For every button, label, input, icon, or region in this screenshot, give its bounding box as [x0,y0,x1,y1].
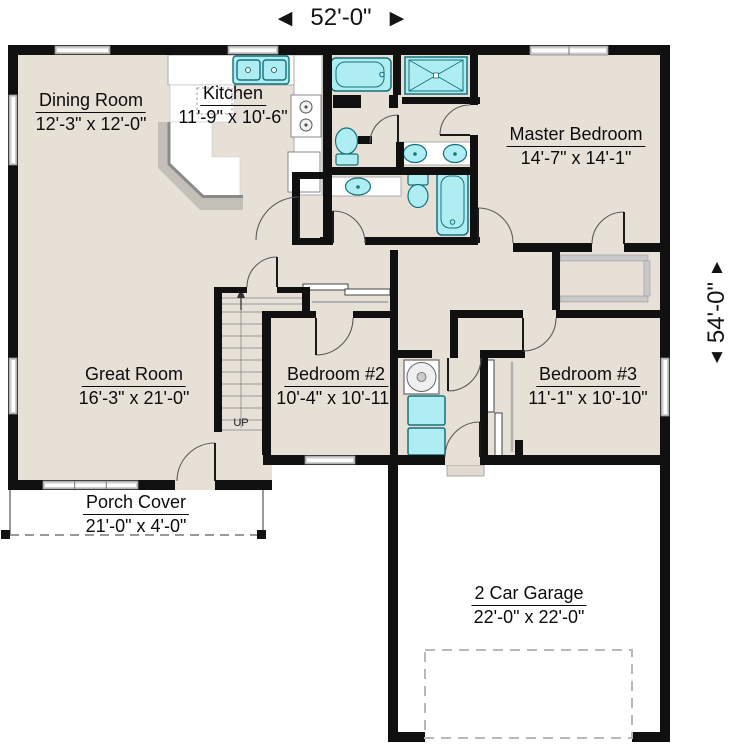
window [43,481,138,489]
room-dims: 21'-0" x 4'-0" [83,515,189,537]
room-dims: 11'-9" x 10'-6" [178,106,287,128]
room-label-bedroom-2: Bedroom #2 10'-4" x 10'-11" [276,364,395,409]
room-dims: 10'-4" x 10'-11" [276,387,395,409]
closet-slider-door [345,289,390,295]
room-dims: 11'-1" x 10'-10" [528,387,647,409]
arrow-right-icon: ▶ [390,9,405,28]
washer [408,396,445,425]
closet-slider-door [487,360,494,412]
window [530,46,608,55]
room-name: Bedroom #3 [536,364,640,387]
room-label-kitchen: Kitchen 11'-9" x 10'-6" [178,83,287,128]
kitchen-sink [233,56,289,84]
room-name: Porch Cover [83,492,189,515]
room-label-garage: 2 Car Garage 22'-0" x 22'-0" [471,583,586,628]
room-name: Great Room [82,364,186,387]
dryer [408,428,445,455]
hall-toilet [336,128,359,165]
height-dimension-text: 54'-0" [703,282,731,343]
window [9,95,17,165]
room-label-dining-room: Dining Room 12'-3" x 12'-0" [36,90,147,135]
room-label-master-bedroom: Master Bedroom 14'-7" x 14'-1" [506,124,645,169]
room-dims: 22'-0" x 22'-0" [471,606,586,628]
master-bathtub [437,172,468,235]
width-dimension: ◀ 52'-0" ▶ [278,4,404,32]
furnace [404,360,439,394]
room-label-great-room: Great Room 16'-3" x 21'-0" [79,364,190,409]
window [55,46,110,54]
window [228,46,278,54]
room-label-porch-cover: Porch Cover 21'-0" x 4'-0" [83,492,189,537]
room-dims: 16'-3" x 21'-0" [79,387,190,409]
room-label-bedroom-3: Bedroom #3 11'-1" x 10'-10" [528,364,647,409]
room-name: Bedroom #2 [284,364,388,387]
width-dimension-text: 52'-0" [310,4,371,32]
height-dimension: ▲ 54'-0" ▼ [697,258,735,367]
master-double-vanity [400,142,477,165]
room-dims: 14'-7" x 14'-1" [506,147,645,169]
master-shower [405,57,467,94]
porch-post-right [257,530,266,539]
window [661,358,669,416]
arrow-up-icon: ▲ [708,258,727,277]
room-name: Kitchen [200,83,266,106]
room-dims: 12'-3" x 12'-0" [36,113,147,135]
room-name: 2 Car Garage [471,583,586,606]
closet-slider-door [495,413,502,456]
stove [291,95,321,137]
arrow-left-icon: ◀ [278,9,293,28]
hall-vanity [327,177,401,196]
window [305,456,355,464]
garage-step [447,465,484,476]
window [9,358,17,414]
stairs-up-label: UP [233,417,248,429]
room-name: Dining Room [36,90,146,113]
arrow-down-icon: ▼ [708,348,727,367]
room-name: Master Bedroom [506,124,645,147]
porch-post-left [1,530,10,539]
floor-plan-page: UP [0,0,735,748]
hall-bathtub [331,58,391,91]
master-toilet [408,174,428,208]
